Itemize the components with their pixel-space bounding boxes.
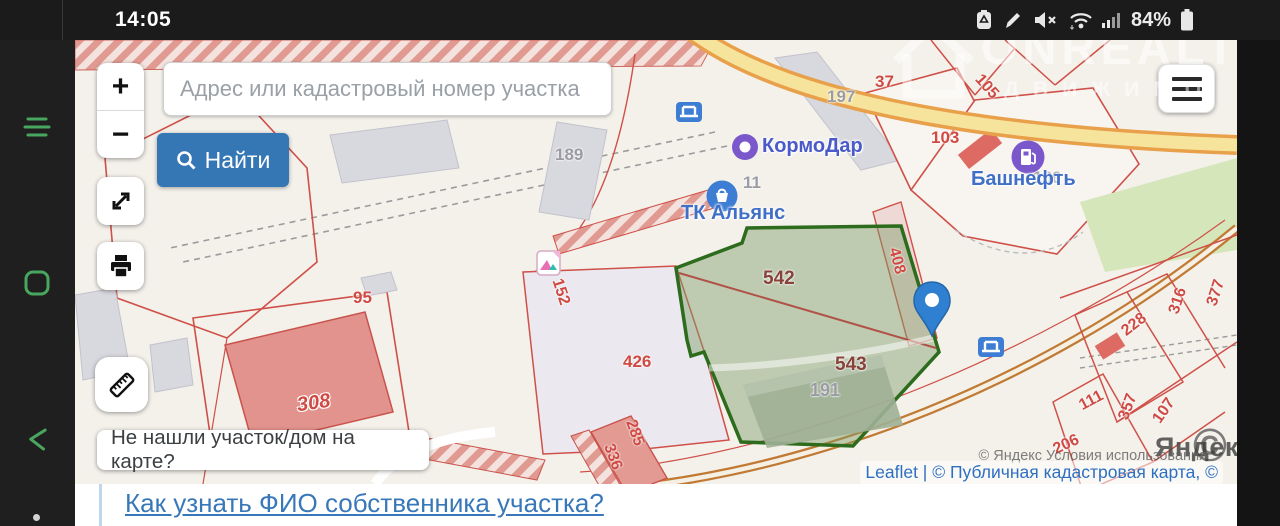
parcel-number: 103 <box>931 128 959 148</box>
printer-icon <box>108 253 134 279</box>
nav-dot <box>33 514 40 521</box>
search-box <box>163 62 612 116</box>
page-content: 1891973710510318611953083204261522853365… <box>75 40 1237 526</box>
status-bar: 14:05 <box>0 0 1280 40</box>
parcel-number: 37 <box>875 72 894 92</box>
poi-label-kormodar[interactable]: КормоДар <box>762 135 863 158</box>
parcel-number: 426 <box>623 352 651 372</box>
marker-pin-icon[interactable] <box>912 280 952 338</box>
fullscreen-button[interactable] <box>97 177 144 225</box>
parcel-number: 542 <box>763 268 795 290</box>
screen: 1891973710510318611953083204261522853365… <box>0 0 1280 526</box>
menu-button[interactable] <box>1158 64 1215 113</box>
zoom-control: + − <box>97 63 144 158</box>
screen-right-bezel <box>1237 40 1280 526</box>
back-icon[interactable] <box>21 422 53 454</box>
parcel-number: 191 <box>810 380 840 401</box>
stylus-icon <box>1002 9 1024 31</box>
parcel-number: 189 <box>555 145 583 165</box>
page-below-map: Как узнать ФИО собственника участка? <box>75 484 1237 526</box>
expand-icon <box>108 188 134 214</box>
print-button[interactable] <box>97 242 144 290</box>
railway-crossing-icon <box>978 337 1004 357</box>
battery-saver-icon <box>975 9 993 31</box>
kormodar-poi-icon[interactable] <box>731 133 759 161</box>
measure-button[interactable] <box>95 357 148 412</box>
parcel-number: 197 <box>827 87 855 107</box>
signal-icon <box>1102 9 1122 31</box>
battery-percent: 84% <box>1131 9 1171 32</box>
cadastral-map[interactable]: 1891973710510318611953083204261522853365… <box>75 40 1237 484</box>
zoom-out-button[interactable]: − <box>97 111 144 158</box>
find-button[interactable]: Найти <box>157 133 289 187</box>
leaflet-attribution-link[interactable]: Leaflet | © Публичная кадастровая карта,… <box>860 461 1223 484</box>
scroll-hint-line <box>99 484 102 526</box>
recents-icon[interactable] <box>21 111 53 143</box>
search-input[interactable] <box>164 63 611 115</box>
zoom-in-button[interactable]: + <box>97 63 144 110</box>
find-button-label: Найти <box>205 147 271 174</box>
owner-info-link[interactable]: Как узнать ФИО собственника участка? <box>125 488 604 519</box>
home-icon[interactable] <box>21 267 53 299</box>
parcel-number: 308 <box>296 390 332 417</box>
battery-icon <box>1180 8 1194 32</box>
poi-label-tk-alyans[interactable]: ТК Альянс <box>681 202 785 225</box>
wifi-icon <box>1067 9 1093 31</box>
parcel-number: 95 <box>353 288 372 308</box>
mute-icon <box>1033 9 1058 31</box>
menu-icon <box>1172 77 1202 81</box>
help-box[interactable]: Не нашли участок/дом на карте? <box>97 430 429 470</box>
android-nav-bar <box>0 40 75 526</box>
photo-icon[interactable] <box>536 250 561 276</box>
railway-crossing-icon <box>676 102 702 122</box>
ruler-icon <box>106 369 138 401</box>
clock: 14:05 <box>115 8 171 32</box>
help-box-label: Не нашли участок/дом на карте? <box>111 426 415 474</box>
parcel-number: 11 <box>743 173 761 193</box>
search-icon <box>176 150 196 170</box>
poi-label-bashneft[interactable]: Башнефть <box>971 168 1076 191</box>
statusbar-divider <box>62 0 63 40</box>
parcel-number: 543 <box>835 354 867 376</box>
